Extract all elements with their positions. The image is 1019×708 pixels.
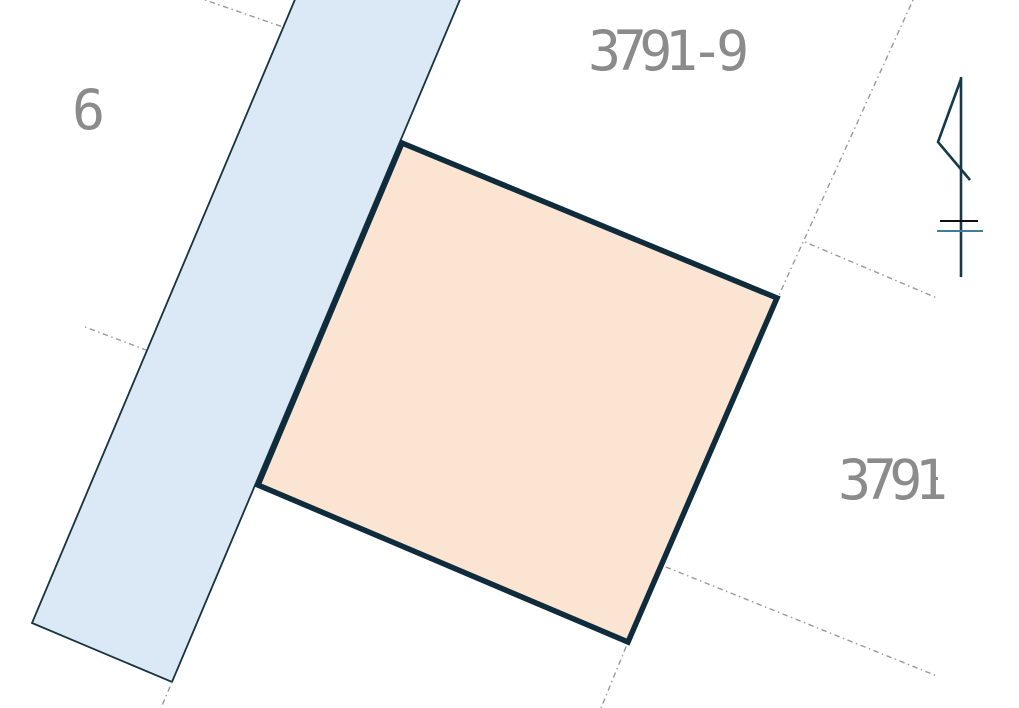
boundary-line-below-parcel bbox=[601, 642, 628, 708]
cadastral-map: 3791-9 3791 6 bbox=[0, 0, 1019, 708]
boundary-line-top-left bbox=[205, 0, 283, 27]
boundary-line-long-right bbox=[779, 0, 913, 295]
flag-zigzag-line bbox=[938, 79, 970, 180]
map-shapes-layer bbox=[0, 0, 1019, 708]
boundary-line-mid-left bbox=[85, 327, 146, 350]
parcel-label-left-partial: 6 bbox=[72, 83, 98, 138]
parcel-label-3791-right: 3791 bbox=[838, 453, 940, 508]
parcel-label-3791-9: 3791-9 bbox=[588, 24, 742, 79]
boundary-line-below-strip bbox=[161, 682, 172, 708]
parcel-label-hyphen-fragment bbox=[933, 477, 938, 480]
survey-flag-symbol bbox=[937, 77, 983, 277]
boundary-line-lower-right bbox=[661, 565, 937, 676]
boundary-line-branch-right bbox=[805, 242, 937, 298]
